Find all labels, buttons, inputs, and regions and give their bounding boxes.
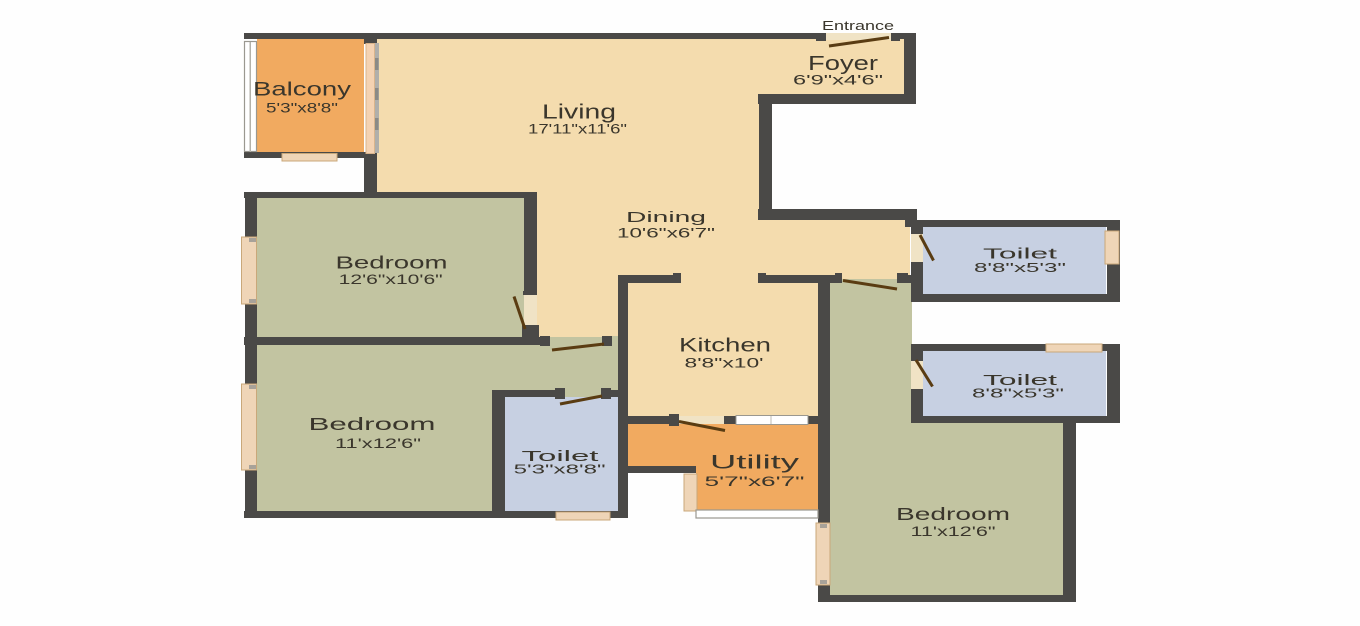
svg-text:8'8"x5'3": 8'8"x5'3": [972, 386, 1065, 401]
svg-text:17'11"x11'6": 17'11"x11'6": [528, 122, 627, 137]
svg-text:Living: Living: [542, 102, 616, 124]
svg-text:12'6"x10'6": 12'6"x10'6": [339, 271, 443, 287]
svg-text:Entrance: Entrance: [822, 18, 894, 33]
svg-text:5'3"x8'8": 5'3"x8'8": [514, 462, 607, 477]
svg-text:Dining: Dining: [626, 209, 706, 226]
svg-text:8'8"x10': 8'8"x10': [685, 356, 764, 371]
svg-text:Bedroom: Bedroom: [309, 414, 436, 434]
svg-text:11'x12'6": 11'x12'6": [911, 523, 996, 539]
svg-text:5'3"x8'8": 5'3"x8'8": [266, 101, 338, 116]
svg-text:5'7"x6'7": 5'7"x6'7": [705, 473, 805, 489]
svg-text:10'6"x6'7": 10'6"x6'7": [617, 226, 715, 241]
svg-text:8'8"x5'3": 8'8"x5'3": [974, 260, 1067, 275]
svg-text:11'x12'6": 11'x12'6": [335, 435, 421, 451]
svg-text:Bedroom: Bedroom: [336, 253, 448, 273]
svg-text:Kitchen: Kitchen: [679, 336, 771, 357]
svg-text:6'9"x4'6": 6'9"x4'6": [793, 72, 883, 88]
svg-text:Utility: Utility: [710, 453, 800, 474]
svg-text:Bedroom: Bedroom: [896, 504, 1010, 524]
svg-text:Balcony: Balcony: [253, 80, 352, 101]
